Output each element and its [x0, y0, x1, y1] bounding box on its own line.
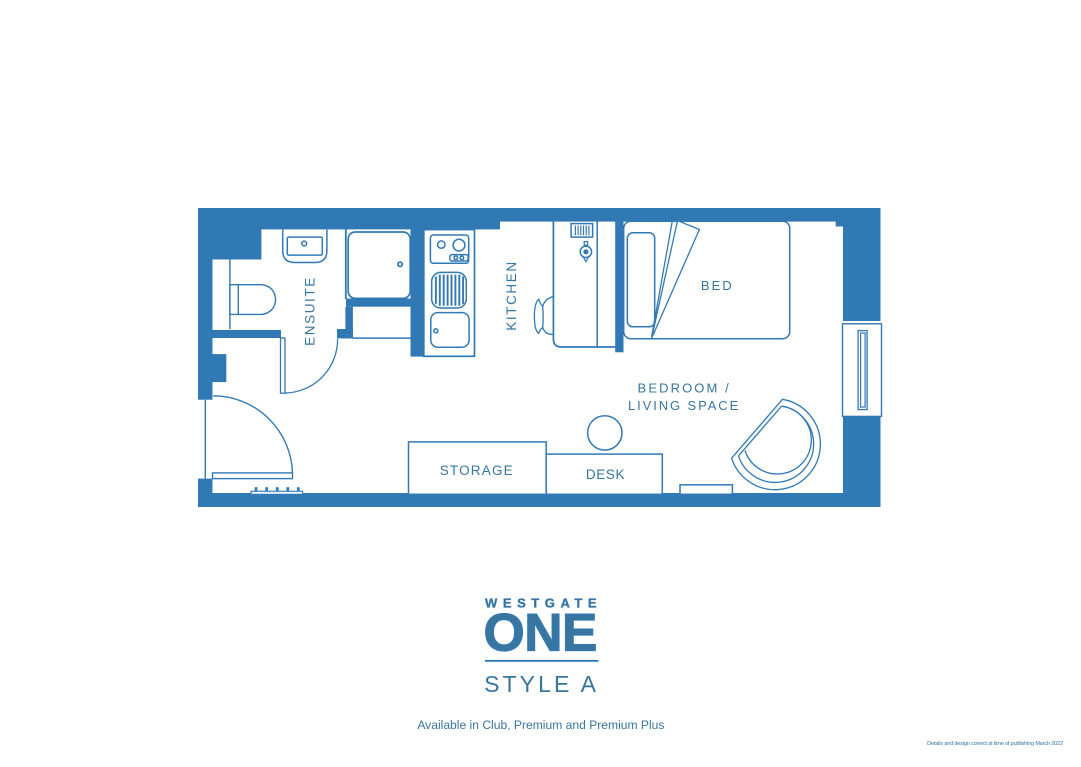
svg-text:STYLE A: STYLE A: [484, 671, 599, 697]
svg-text:BED: BED: [701, 278, 734, 293]
svg-text:LIVING SPACE: LIVING SPACE: [628, 398, 740, 413]
svg-text:ONE: ONE: [484, 603, 597, 662]
svg-text:STORAGE: STORAGE: [440, 463, 514, 478]
svg-text:Available in Club, Premium and: Available in Club, Premium and Premium P…: [417, 718, 664, 732]
svg-text:ENSUITE: ENSUITE: [302, 276, 317, 346]
svg-text:DESK: DESK: [586, 467, 625, 482]
svg-text:KITCHEN: KITCHEN: [504, 260, 519, 330]
svg-text:Details and design correct at: Details and design correct at time of pu…: [927, 741, 1063, 747]
svg-text:BEDROOM /: BEDROOM /: [638, 381, 731, 396]
